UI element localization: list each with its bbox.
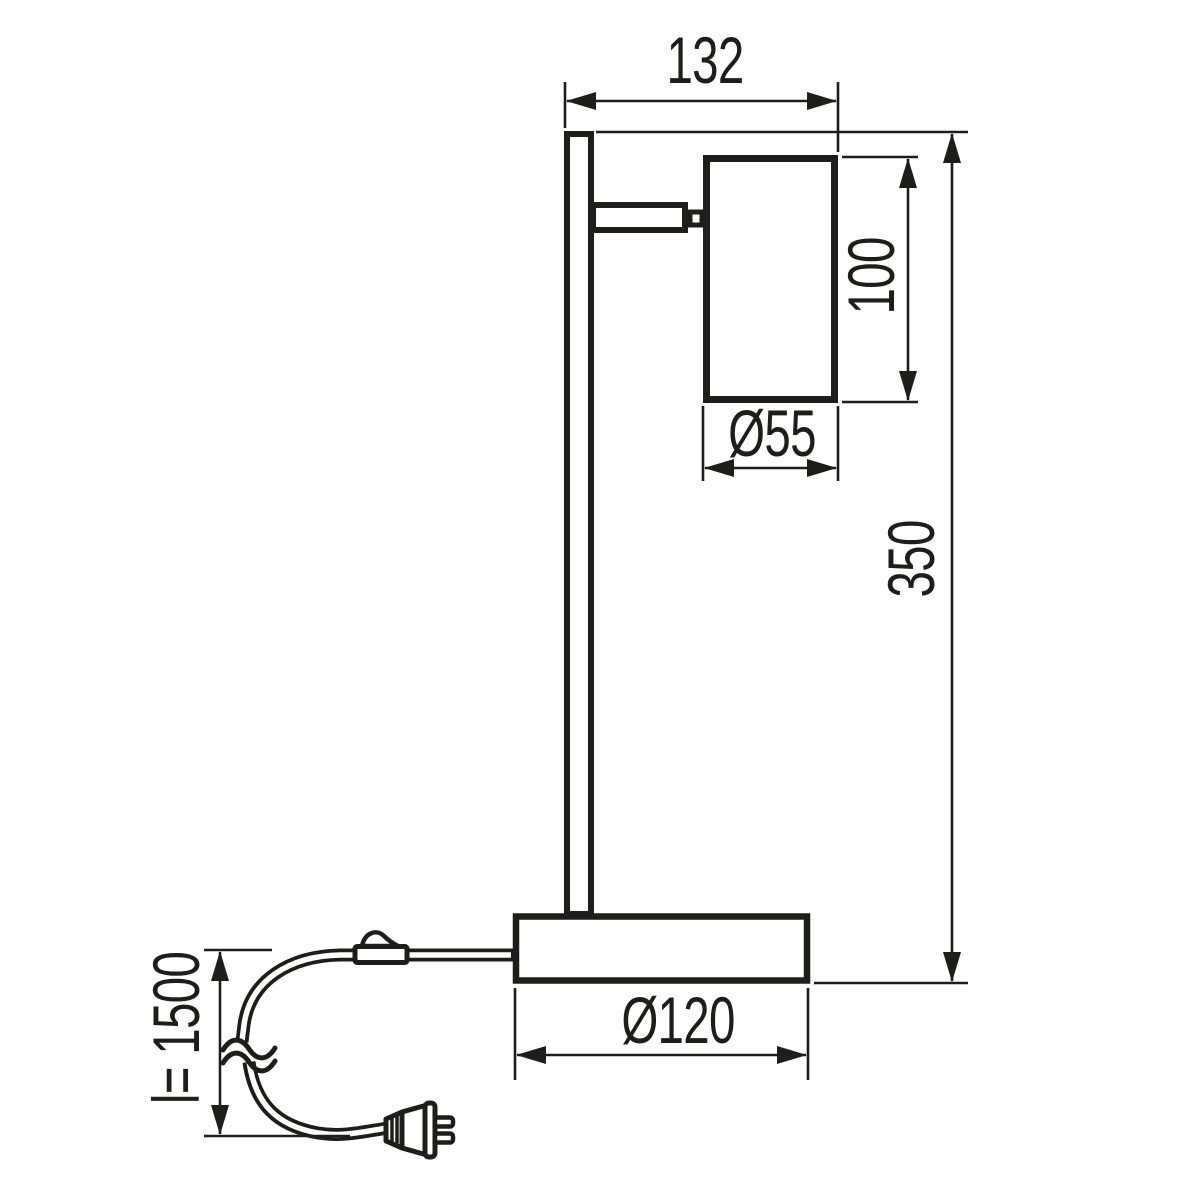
dimension-drawing-page: 132 100 Ø55 350 Ø120 [0, 0, 1200, 1200]
dim-label-cable-length: l= 1500 [140, 952, 213, 1104]
dim-120-base-diameter: Ø120 [515, 984, 808, 1080]
cord-lower-segment [249, 1062, 388, 1134]
dim-55-shade-diameter: Ø55 [703, 397, 838, 481]
arrowhead-left [566, 92, 596, 110]
power-plug [386, 1103, 453, 1157]
arrowhead-bottom [943, 952, 961, 982]
dim-label-120: Ø120 [621, 984, 734, 1057]
lamp-pole [567, 134, 591, 914]
lamp-shade [707, 159, 835, 400]
cord-lower-segment-inner [249, 1061, 387, 1134]
lamp-outline [516, 134, 835, 981]
cord-switch [355, 932, 407, 962]
arrowhead-bottom [211, 1105, 229, 1135]
arrowhead-left [516, 1046, 546, 1064]
power-cord [223, 932, 514, 1157]
lamp-base [516, 917, 807, 981]
arrowhead-right [777, 1046, 807, 1064]
cord-upper-segment-inner [242, 955, 511, 1041]
dim-label-350: 350 [875, 520, 948, 597]
dim-label-55: Ø55 [728, 397, 816, 470]
dim-label-132: 132 [666, 24, 743, 97]
plug-prong-top [435, 1118, 453, 1127]
switch-body [355, 947, 407, 963]
arrowhead-right [807, 92, 837, 110]
plug-face [425, 1103, 435, 1157]
dim-100-shade-height: 100 [835, 157, 918, 402]
arrowhead-bottom [899, 371, 917, 401]
arrowhead-top [943, 133, 961, 163]
dim-label-100: 100 [835, 237, 908, 314]
arrowhead-top [899, 158, 917, 188]
lamp-arm-joint [690, 212, 702, 225]
switch-lever [362, 932, 398, 946]
plug-prong-bottom [435, 1134, 453, 1143]
lamp-arm [593, 205, 685, 230]
lamp-dimension-drawing: 132 100 Ø55 350 Ø120 [0, 0, 1200, 1200]
